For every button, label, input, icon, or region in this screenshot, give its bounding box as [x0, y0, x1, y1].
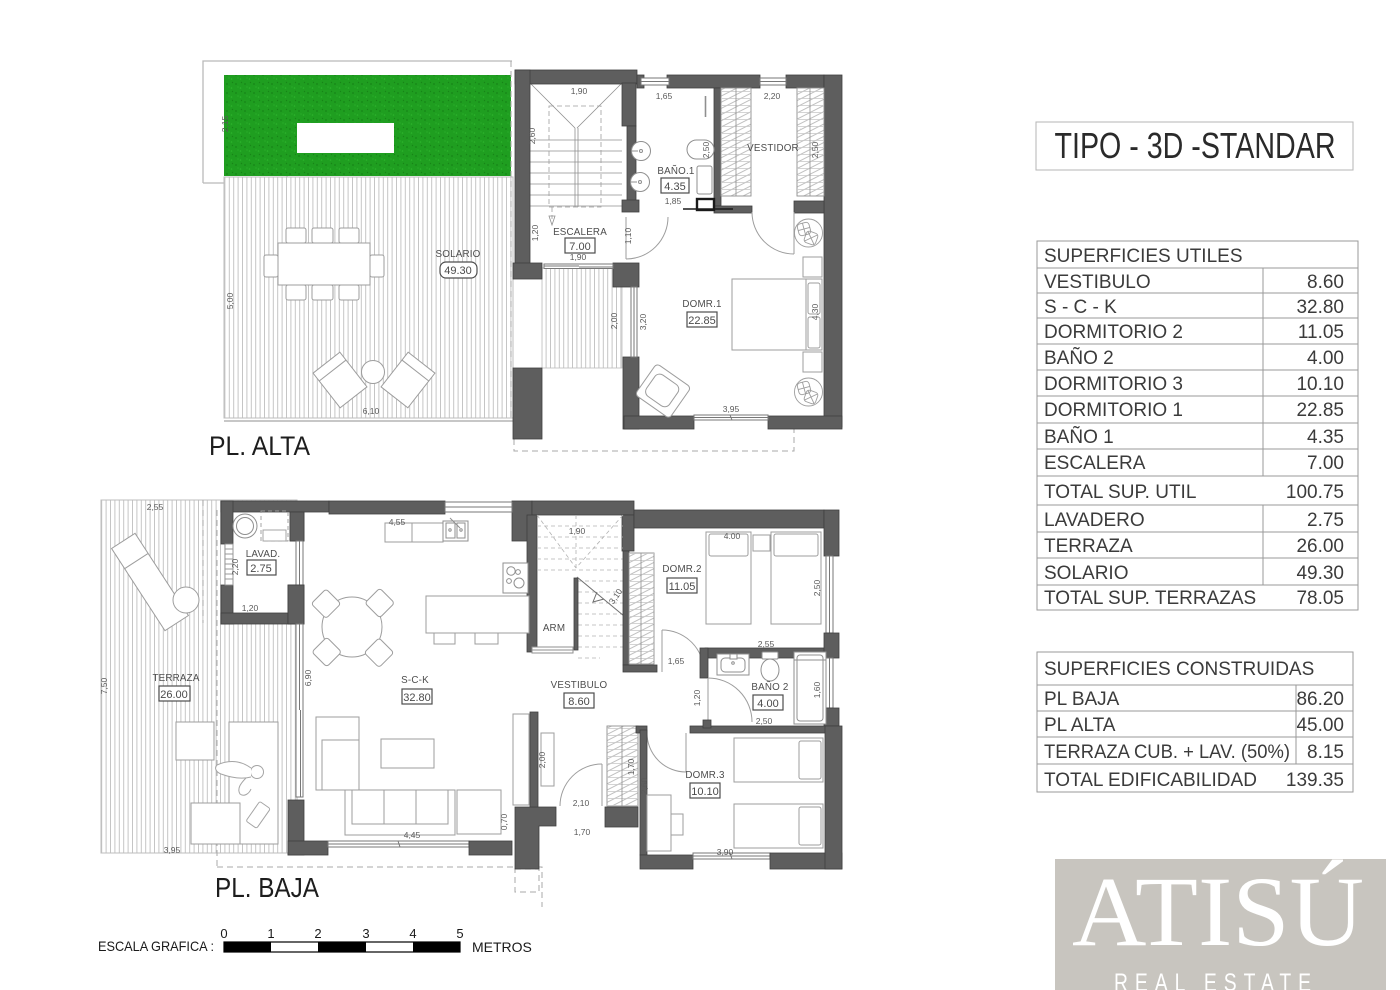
svg-text:2,55: 2,55 [758, 639, 775, 649]
svg-text:0: 0 [220, 926, 227, 941]
svg-text:4.00: 4.00 [757, 698, 778, 710]
svg-text:VESTIDOR: VESTIDOR [747, 143, 799, 154]
svg-text:DORMITORIO 3: DORMITORIO 3 [1044, 374, 1183, 395]
svg-text:PL ALTA: PL ALTA [1044, 715, 1116, 736]
svg-text:PL BAJA: PL BAJA [1044, 689, 1120, 710]
svg-text:1,20: 1,20 [530, 224, 540, 241]
svg-text:1,90: 1,90 [569, 526, 586, 536]
svg-text:BAÑO.1: BAÑO.1 [657, 166, 694, 177]
svg-text:1,65: 1,65 [656, 91, 673, 101]
svg-text:2,10: 2,10 [573, 798, 590, 808]
svg-text:TERRAZA: TERRAZA [152, 673, 199, 684]
svg-text:10.10: 10.10 [1296, 374, 1344, 395]
svg-text:2,00: 2,00 [609, 312, 619, 329]
svg-text:4.35: 4.35 [664, 181, 685, 193]
svg-text:3,90: 3,90 [717, 847, 734, 857]
svg-text:8.15: 8.15 [1307, 742, 1344, 763]
svg-text:1,20: 1,20 [692, 689, 702, 706]
svg-text:SUPERFICIES UTILES: SUPERFICIES UTILES [1044, 246, 1243, 267]
svg-text:DORMITORIO 2: DORMITORIO 2 [1044, 322, 1183, 343]
svg-text:PL. BAJA: PL. BAJA [215, 872, 319, 903]
svg-text:LAVADERO: LAVADERO [1044, 510, 1145, 531]
svg-text:139.35: 139.35 [1286, 770, 1344, 791]
svg-text:BAÑO 1: BAÑO 1 [1044, 426, 1114, 448]
svg-text:2,55: 2,55 [147, 502, 164, 512]
svg-text:2,20: 2,20 [230, 558, 240, 575]
svg-text:3,20: 3,20 [638, 313, 648, 330]
svg-text:3,95: 3,95 [723, 404, 740, 414]
svg-text:4.00: 4.00 [1307, 348, 1344, 369]
svg-text:SOLARIO: SOLARIO [436, 249, 481, 260]
svg-text:11.05: 11.05 [1298, 322, 1344, 343]
svg-text:VESTIBULO: VESTIBULO [1044, 272, 1151, 293]
svg-text:1,85: 1,85 [665, 196, 682, 206]
svg-text:2,00: 2,00 [537, 751, 547, 768]
svg-text:2,50: 2,50 [701, 141, 711, 158]
svg-text:2,15: 2,15 [220, 115, 230, 132]
svg-text:1,65: 1,65 [668, 656, 685, 666]
svg-text:22.85: 22.85 [1296, 400, 1344, 421]
svg-text:DOMR.1: DOMR.1 [682, 299, 721, 310]
svg-text:2.75: 2.75 [1307, 510, 1344, 531]
svg-text:1: 1 [267, 926, 274, 941]
svg-text:22.85: 22.85 [688, 315, 716, 327]
svg-text:BAÑO 2: BAÑO 2 [1044, 347, 1114, 369]
svg-text:2,50: 2,50 [812, 579, 822, 596]
svg-text:2.75: 2.75 [250, 563, 271, 575]
svg-text:2,20: 2,20 [764, 91, 781, 101]
svg-text:6,10: 6,10 [363, 406, 380, 416]
svg-text:DOMR.2: DOMR.2 [662, 564, 701, 575]
svg-text:TIPO - 3D -STANDAR: TIPO - 3D -STANDAR [1055, 125, 1336, 166]
svg-text:4,30: 4,30 [810, 303, 820, 320]
svg-text:PL. ALTA: PL. ALTA [209, 431, 310, 461]
svg-text:1,10: 1,10 [623, 227, 633, 244]
svg-text:VESTIBULO: VESTIBULO [551, 680, 608, 691]
svg-text:TERRAZA CUB. + LAV. (50%): TERRAZA CUB. + LAV. (50%) [1044, 742, 1290, 763]
svg-text:26.00: 26.00 [1296, 536, 1344, 557]
svg-text:1,90: 1,90 [571, 86, 588, 96]
svg-text:SUPERFICIES CONSTRUIDAS: SUPERFICIES CONSTRUIDAS [1044, 659, 1314, 680]
svg-text:ARM: ARM [543, 623, 565, 634]
svg-text:32.80: 32.80 [403, 692, 431, 704]
svg-text:METROS: METROS [472, 939, 532, 955]
svg-text:2,60: 2,60 [639, 777, 649, 794]
svg-text:5,00: 5,00 [225, 292, 235, 309]
svg-text:100.75: 100.75 [1286, 482, 1344, 503]
svg-text:10.10: 10.10 [691, 786, 719, 798]
svg-text:1,70: 1,70 [574, 827, 591, 837]
svg-text:8.60: 8.60 [568, 696, 589, 708]
svg-text:45.00: 45.00 [1296, 715, 1344, 736]
svg-text:3,95: 3,95 [164, 845, 181, 855]
svg-text:5: 5 [456, 926, 463, 941]
svg-text:TERRAZA: TERRAZA [1044, 536, 1133, 557]
svg-text:ESCALERA: ESCALERA [1044, 453, 1146, 474]
svg-text:REAL ESTATE: REAL ESTATE [1114, 969, 1318, 990]
svg-text:49.30: 49.30 [444, 265, 472, 277]
svg-text:TOTAL SUP. TERRAZAS: TOTAL SUP. TERRAZAS [1044, 588, 1256, 609]
svg-text:6,90: 6,90 [303, 669, 313, 686]
svg-text:BAÑO 2: BAÑO 2 [751, 682, 788, 693]
svg-text:0,70: 0,70 [499, 813, 509, 830]
svg-text:1,20: 1,20 [242, 603, 259, 613]
svg-text:8.60: 8.60 [1307, 272, 1344, 293]
svg-text:SOLARIO: SOLARIO [1044, 563, 1128, 584]
svg-text:3: 3 [362, 926, 369, 941]
svg-text:DORMITORIO 1: DORMITORIO 1 [1044, 400, 1183, 421]
svg-text:2,60: 2,60 [527, 127, 537, 144]
svg-text:32.80: 32.80 [1296, 297, 1344, 318]
svg-text:4.00: 4.00 [724, 531, 741, 541]
svg-text:TOTAL EDIFICABILIDAD: TOTAL EDIFICABILIDAD [1044, 770, 1257, 791]
svg-text:26.00: 26.00 [160, 689, 188, 701]
svg-text:TOTAL SUP. UTIL: TOTAL SUP. UTIL [1044, 482, 1196, 503]
svg-text:2: 2 [314, 926, 321, 941]
svg-text:S - C - K: S - C - K [1044, 297, 1117, 318]
svg-text:4.35: 4.35 [1307, 427, 1344, 448]
svg-text:LAVAD.: LAVAD. [246, 549, 281, 560]
svg-text:1,60: 1,60 [812, 681, 822, 698]
svg-text:2,50: 2,50 [810, 141, 820, 158]
svg-text:11.05: 11.05 [669, 581, 696, 593]
svg-text:S-C-K: S-C-K [401, 675, 429, 686]
svg-text:4,45: 4,45 [404, 830, 421, 840]
svg-text:1,70: 1,70 [626, 758, 636, 775]
svg-text:ESCALERA: ESCALERA [553, 227, 607, 238]
svg-text:2,50: 2,50 [756, 716, 773, 726]
svg-text:ATISÚ: ATISÚ [1072, 856, 1364, 967]
svg-text:78.05: 78.05 [1296, 588, 1344, 609]
svg-text:DOMR.3: DOMR.3 [685, 770, 725, 781]
svg-text:49.30: 49.30 [1296, 563, 1344, 584]
svg-text:86.20: 86.20 [1296, 689, 1344, 710]
svg-text:4,55: 4,55 [389, 517, 406, 527]
svg-text:7.00: 7.00 [1307, 453, 1344, 474]
svg-text:7,50: 7,50 [99, 677, 109, 694]
svg-text:ESCALA GRAFICA :: ESCALA GRAFICA : [98, 938, 214, 954]
svg-text:4: 4 [409, 926, 416, 941]
svg-text:1,90: 1,90 [570, 252, 587, 262]
